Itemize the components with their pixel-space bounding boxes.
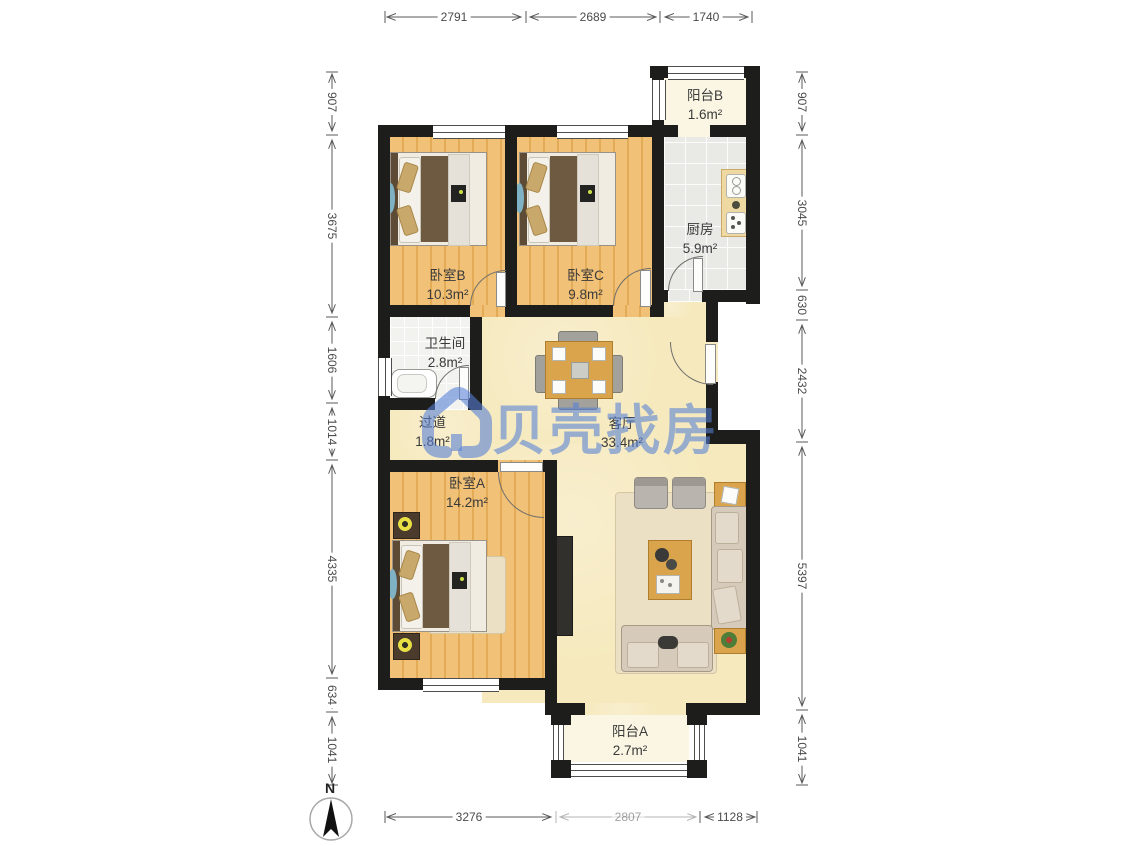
dim-top-2: 2689 — [577, 10, 610, 24]
dim-bottom-2: 2807 — [612, 810, 645, 824]
dim-left-6: 634 — [325, 682, 339, 708]
dim-left-3: 1606 — [325, 344, 339, 377]
dim-right-5: 5397 — [795, 560, 809, 593]
dim-left-5: 4335 — [325, 553, 339, 586]
dim-left-7: 1041 — [325, 734, 339, 767]
dim-right-1: 907 — [795, 89, 809, 115]
dim-right-3: 630 — [795, 292, 809, 318]
compass-icon — [308, 796, 354, 842]
dim-left-4: 1014 — [325, 416, 339, 449]
floorplan-canvas: 卧室B 10.3m² 卧室C 9.8m² 阳台B 1.6m² 厨房 5.9m² … — [0, 0, 1135, 846]
dimension-lines — [0, 0, 1135, 846]
dim-top-3: 1740 — [690, 10, 723, 24]
compass-north-label: N — [325, 780, 335, 796]
dim-bottom-1: 3276 — [453, 810, 486, 824]
dim-right-2: 3045 — [795, 197, 809, 230]
dim-top-1: 2791 — [438, 10, 471, 24]
dim-bottom-3: 1128 — [714, 810, 746, 824]
dim-right-6: 1041 — [795, 733, 809, 766]
dim-right-4: 2432 — [795, 365, 809, 398]
dim-left-2: 3675 — [325, 210, 339, 243]
dim-left-1: 907 — [325, 89, 339, 115]
